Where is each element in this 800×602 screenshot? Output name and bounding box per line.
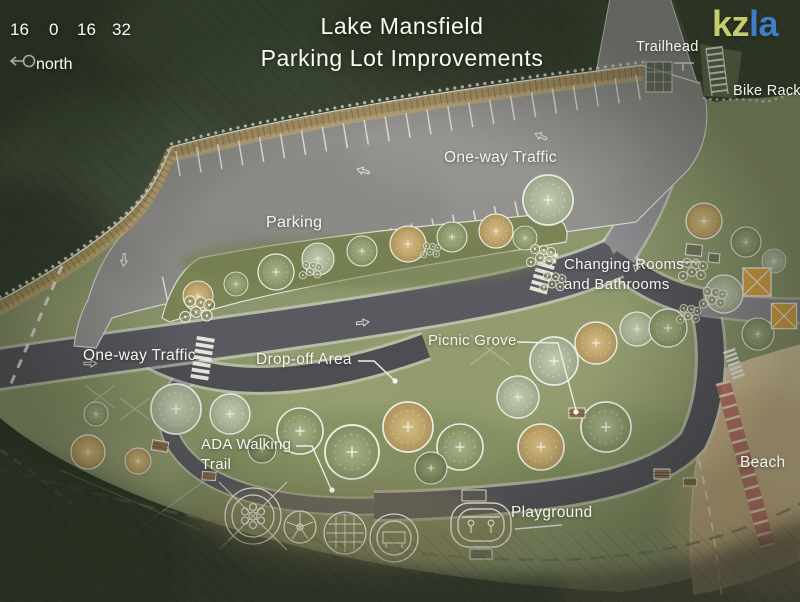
label-one-way-traffic-top: One-way Traffic <box>444 149 557 167</box>
label-playground: Playground <box>511 504 592 522</box>
label-trailhead: Trailhead <box>636 39 699 55</box>
scale-tick: 16 <box>10 20 29 40</box>
label-changing-rooms-line1: Changing Rooms <box>564 255 684 275</box>
label-drop-off-area: Drop-off Area <box>256 351 352 369</box>
logo-kz: kz <box>712 3 749 44</box>
north-indicator: north <box>8 50 128 80</box>
scale-tick: 32 <box>112 20 131 40</box>
north-label: north <box>36 56 72 74</box>
site-plan: Lake Mansfield Parking Lot Improvements … <box>0 0 800 602</box>
plan-title: Lake Mansfield Parking Lot Improvements <box>202 10 602 74</box>
plan-title-line2: Parking Lot Improvements <box>202 42 602 74</box>
label-changing-rooms: Changing Rooms and Bathrooms <box>564 255 684 295</box>
scale-tick: 16 <box>77 20 96 40</box>
logo-la: la <box>749 3 778 44</box>
plan-title-line1: Lake Mansfield <box>202 10 602 42</box>
label-picnic-grove: Picnic Grove <box>428 331 517 351</box>
label-beach: Beach <box>740 454 785 472</box>
scale-tick: 0 <box>49 20 58 40</box>
label-bike-rack: Bike Rack <box>733 83 800 99</box>
site-plan-graphics <box>0 0 800 602</box>
label-parking: Parking <box>266 214 322 232</box>
firm-logo: kzla <box>712 6 778 42</box>
label-ada-line1: ADA Walking <box>201 435 291 455</box>
label-changing-rooms-line2: and Bathrooms <box>564 275 684 295</box>
label-ada-line2: Trail <box>201 455 291 475</box>
label-one-way-traffic-left: One-way Traffic <box>83 347 196 365</box>
label-ada-walking-trail: ADA Walking Trail <box>201 435 291 475</box>
